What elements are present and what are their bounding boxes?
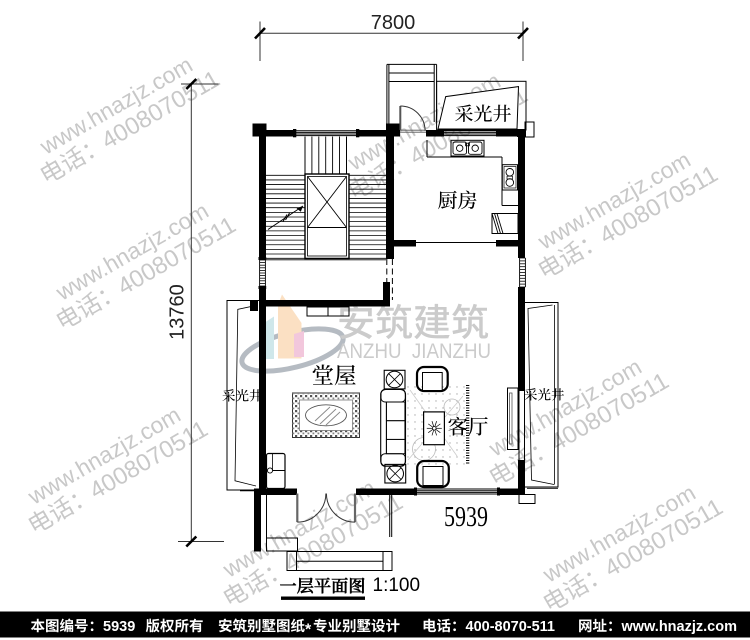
svg-text:400-8070-511: 400-8070-511 [466, 619, 556, 635]
svg-text:ANZHU JIANZHU: ANZHU JIANZHU [337, 340, 491, 363]
svg-text:5939: 5939 [103, 619, 135, 635]
svg-text:1:100: 1:100 [373, 575, 421, 596]
svg-text:*: * [305, 622, 312, 639]
svg-text:www.hnazjz.com: www.hnazjz.com [621, 619, 737, 635]
svg-text:13760: 13760 [167, 284, 189, 340]
svg-text:7800: 7800 [371, 12, 416, 34]
svg-text:5939: 5939 [444, 502, 488, 533]
